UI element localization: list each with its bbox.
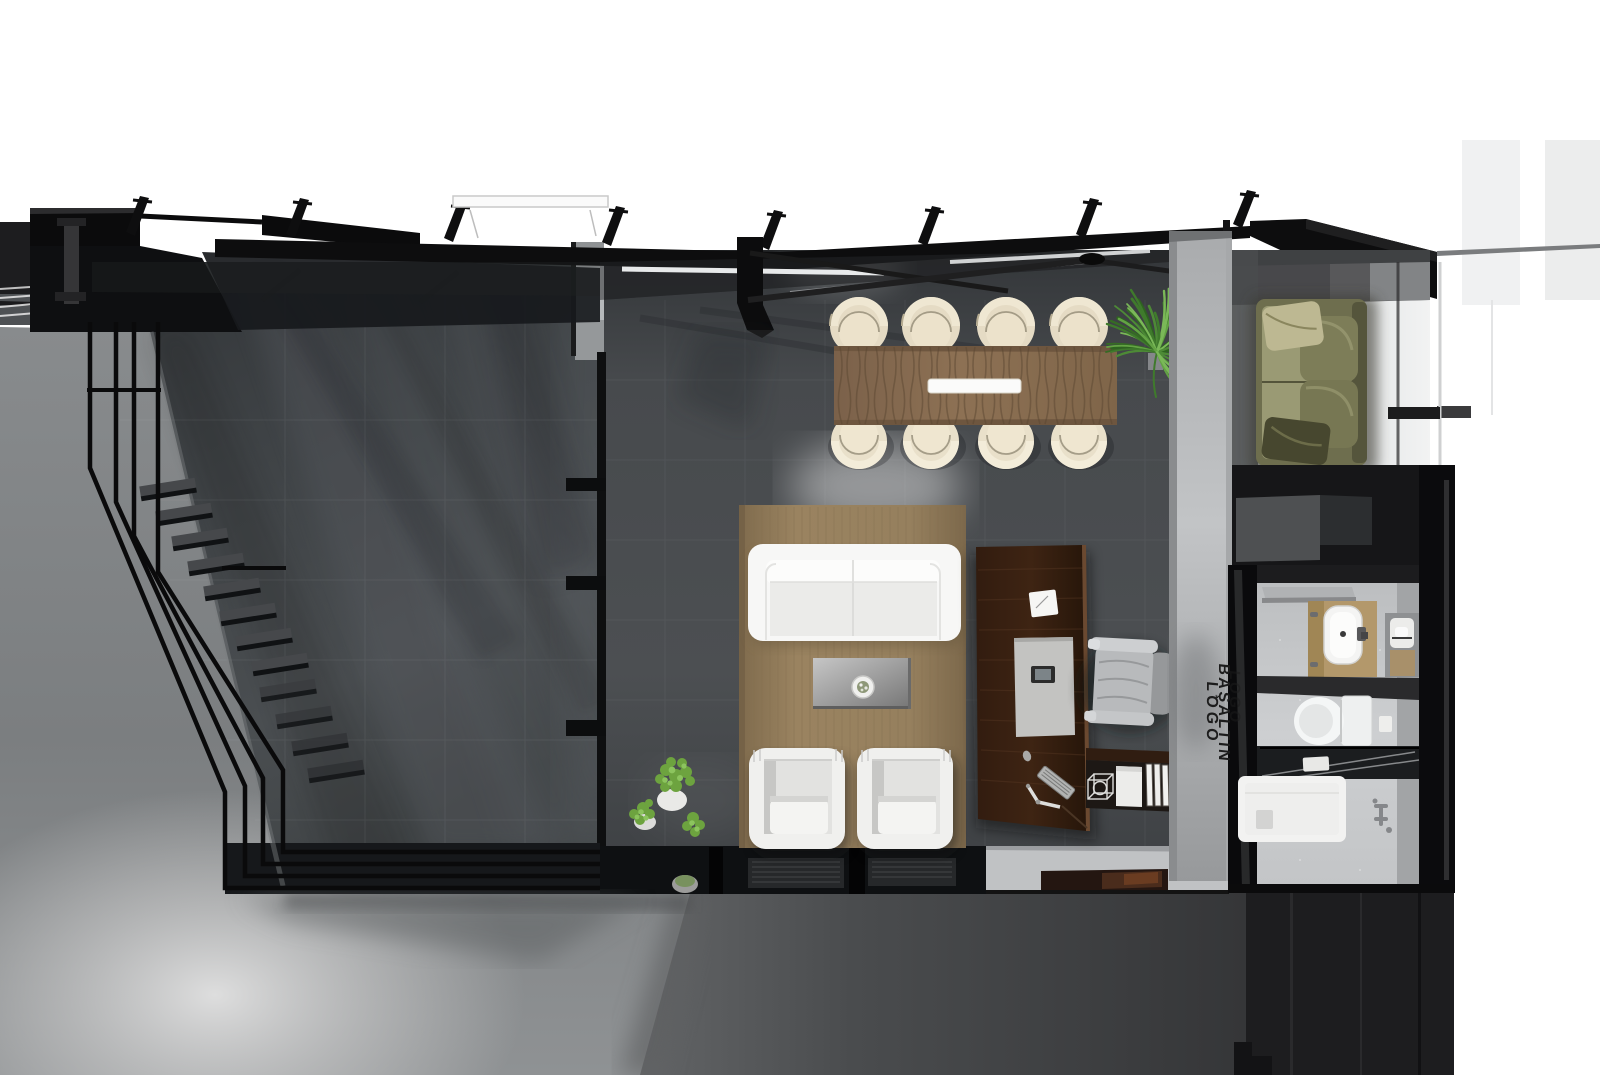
svg-text:LOGO: LOGO	[1203, 681, 1221, 746]
